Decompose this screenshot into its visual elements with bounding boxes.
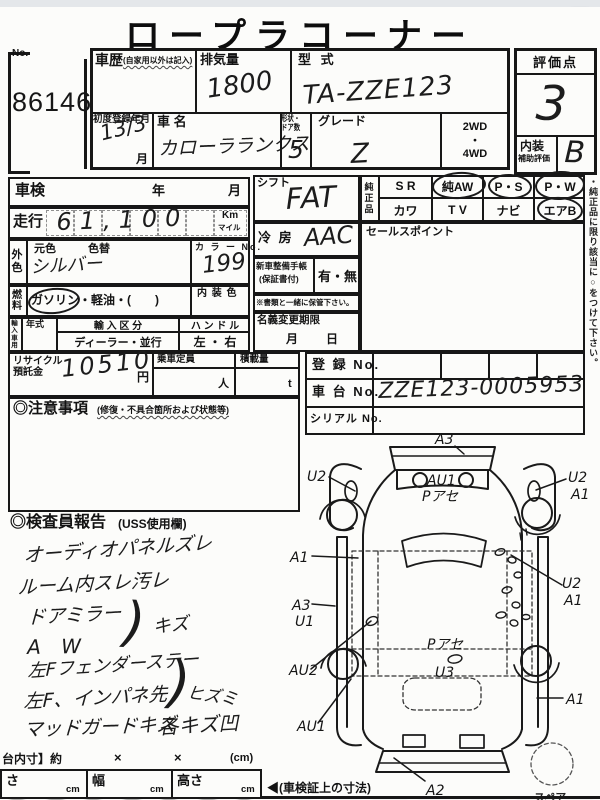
interior-grade-sub: 補助評価 [518,155,550,164]
damage-label-left-rear: AU1 [296,719,326,735]
note-bracket: ) [122,595,147,650]
caution-label: ◎注意事項 [13,401,88,417]
score-label: 評価点 [514,50,597,72]
genuine-label: 純正品 [364,182,374,214]
lot-no-value: 86146 [12,87,92,118]
transfer-label: 名義変更期限 [257,315,320,326]
displacement-label: 排気量 [200,53,239,67]
notebook-sub-label: (保証書付) [259,275,299,284]
mileage-label: 走行 [13,214,43,230]
windshield [402,534,486,568]
inspector-note: 左F、インパネ先 [23,685,167,712]
length-unit: cm [66,785,80,795]
front-bumper [390,447,495,470]
rear-window [403,678,481,710]
score-value: 3 [535,79,569,129]
inspector-note: 各キズ凹 [158,713,239,737]
right-front-wheel [522,498,552,528]
inspector-note: オーディオパネルズレ [23,534,212,566]
option-navi: ナビ [484,199,533,221]
fuel-label: 燃料 [12,290,23,313]
recycle-label: リサイクル預託金 [13,357,63,379]
shaken-label: 車検 [15,183,45,199]
inspector-note: キズ [152,615,190,637]
color-label: 外色 [11,249,23,275]
sales-point-box [360,222,585,352]
right-rear-wheel [521,646,551,676]
car-name-label: 車 名 [157,115,187,129]
left-front-wheel [327,500,357,530]
history-sub-label: (自家用以外は記入) [123,57,192,66]
notebook-label: 新車整備手帳 [256,262,307,271]
length-label: さ [6,774,19,788]
model-code-label: 型 式 [298,53,337,67]
width-label: 幅 [92,774,105,788]
shaken-year-label: 年 [152,184,165,198]
damage-label-hood-2: Pアセ [422,489,459,505]
inspector-note: マッドガードキズ [23,716,176,740]
genuine-side-note: ・純正品に限り該当に○をつけて下さい。 [587,177,600,427]
lot-no-label: No. [12,49,28,60]
tail-lamp-left [403,735,425,747]
auction-sheet-page: ロープラコーナー No. 86146 車歴 (自家用以外は記入) 排気量 180… [0,0,600,800]
transfer-day: 日 [326,333,338,346]
damage-label-front: A3 [434,432,453,448]
cargo-dim-label: 台内寸】約 [2,753,62,766]
caution-sub-label: (修復・不具合箇所および状態等) [97,406,229,416]
history-label: 車歴 [95,53,123,68]
times-2: × [174,751,182,765]
option-tv: T V [433,199,482,221]
damage-label-rr-fender: A1 [565,692,584,708]
ac-label: 冷 房 [258,231,294,245]
mileage-digit-cell [186,210,214,236]
grade-value: Z [350,140,370,168]
damage-label-rf-fender-2: A1 [570,487,589,503]
capacity-unit: 人 [218,379,229,391]
headlight-right [459,473,473,487]
chassis-no-label: 車 台 No. [312,385,380,399]
mileage-unit-km: Km [222,211,238,222]
spare-tire-circle [531,743,573,785]
damage-label-roof-1: Pアセ [427,637,464,653]
first-reg-unit: 月 [136,153,148,166]
base-color-label: 元色 [34,244,56,256]
shape-door-value: 5 [288,137,304,162]
shape-door-label: 形状・ドア数 [281,115,300,132]
import-label: 輸入車用 [11,320,18,350]
tail-lamp-right [460,735,484,748]
cm-paren: (cm) [230,753,253,765]
damage-label-lf-fender: U2 [307,469,326,485]
damage-label-roof-2: U3 [435,665,454,681]
car-damage-diagram: A3 U2 AU1 Pアセ U2 A1 A1 A3 U1 AU2 AU1 Pアセ… [285,427,600,800]
import-class-value: ディーラー・並行 [58,333,178,350]
grade-label: グレード [318,115,366,128]
inspector-report-heading: ◎検査員報告 [10,514,106,531]
serial-no-label: シリアル No. [310,414,383,426]
damage-label-left-sill-1: A3 [291,598,310,614]
handle-value: 左 ・ 右 [180,333,250,350]
option-sr: S R [380,175,431,197]
interior-color-label: 内 装 色 [197,289,238,300]
shift-value: FAT [285,182,337,214]
notebook-value: 有・無 [315,257,360,294]
keep-note: ※書類と一緒に保管下さい。 [256,299,354,307]
damage-label-hood-1: AU1 [426,473,456,489]
recycle-unit: 円 [137,371,149,384]
dimension-table [0,769,262,799]
sales-point-label: セールスポイント [366,227,454,239]
drive-type-options: 2WD・4WD [442,114,508,169]
left-rear-wheel [328,649,358,679]
damage-label-lr-fender: AU2 [288,663,318,679]
damage-label-right-door-1: U2 [562,576,581,592]
interior-grade-label: 内装 [520,140,544,153]
inspector-note: A W [27,636,88,657]
transfer-month: 月 [286,333,298,346]
ac-value: AAC [303,223,354,250]
body-left-edge [363,470,395,729]
damage-label-rf-fender-1: U2 [568,470,587,486]
damage-label-left-door: A1 [289,550,308,566]
body-right-edge [490,470,522,729]
reg-dim-note: ◀(車検証上の寸法) [267,782,371,795]
model-year-label: 年式 [26,320,44,330]
color-value: シルバー [30,255,103,277]
inspector-note: ドアミラー [26,604,121,628]
rear-bumper [376,751,509,772]
shaken-month-label: 月 [228,184,241,198]
left-rocker [337,537,347,727]
times-1: × [114,751,122,765]
option-kawa: カワ [380,199,431,221]
height-label: 高さ [177,774,203,788]
load-label: 積載量 [240,355,269,365]
scanned-document: ロープラコーナー No. 86146 車歴 (自家用以外は記入) 排気量 180… [0,7,600,800]
inspector-report-sub: (USS使用欄) [118,518,187,531]
handle-label: ハ ン ド ル [180,318,250,330]
reg-no-label: 登 録 No. [312,358,380,372]
mileage-unit-mile: マイル [218,224,241,232]
damage-label-left-sill-2: U1 [295,614,314,630]
mileage-value: 61,100 [56,205,189,234]
interior-grade-value: B [564,138,586,169]
load-unit: t [288,379,292,391]
import-class-label: 輸 入 区 分 [58,318,178,330]
headlight-left [413,473,427,487]
width-unit: cm [150,785,164,795]
damage-label-right-door-2: A1 [563,593,582,609]
inspector-note: ヒズミ [186,685,239,709]
capacity-label: 乗車定員 [157,355,195,365]
roof-outline [352,551,532,710]
color-no-value: 199 [201,250,247,277]
height-unit: cm [241,785,255,795]
top-strip [0,0,600,7]
